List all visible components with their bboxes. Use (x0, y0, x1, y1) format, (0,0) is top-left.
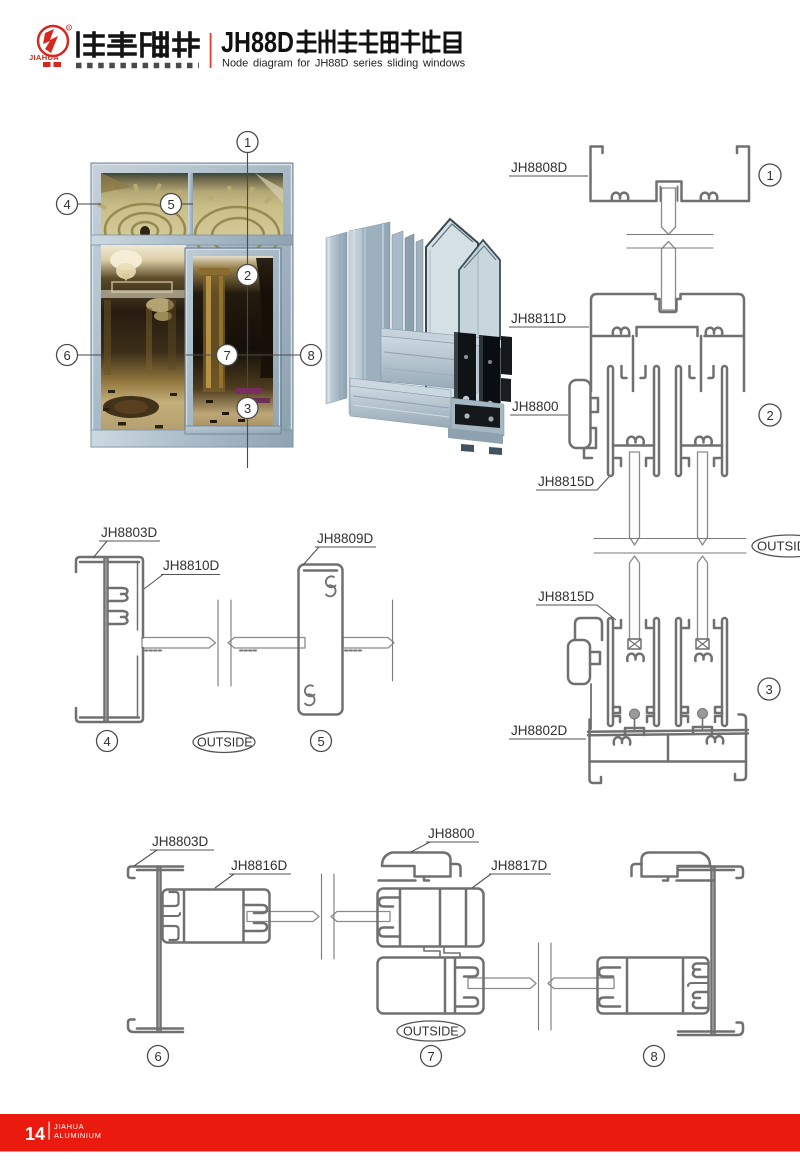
svg-text:OUTSIDE: OUTSIDE (403, 1025, 459, 1039)
svg-text:JH88D: JH88D (221, 27, 294, 59)
svg-text:JH8817D: JH8817D (491, 858, 548, 873)
svg-text:5: 5 (168, 197, 175, 212)
svg-text:2: 2 (244, 268, 251, 283)
svg-text:2: 2 (767, 408, 774, 423)
svg-text:JH8803D: JH8803D (101, 525, 158, 540)
svg-text:8: 8 (651, 1049, 658, 1064)
svg-text:JH8800: JH8800 (512, 399, 559, 414)
svg-text:7: 7 (224, 348, 231, 363)
svg-text:OUTSIDE: OUTSIDE (757, 539, 800, 554)
svg-text:JH8810D: JH8810D (163, 558, 220, 573)
svg-text:R: R (67, 26, 70, 31)
svg-text:JH8808D: JH8808D (511, 160, 568, 175)
svg-text:JH8809D: JH8809D (317, 531, 374, 546)
svg-text:3: 3 (766, 682, 773, 697)
svg-text:JIAHUA: JIAHUA (54, 1122, 84, 1131)
svg-text:JH8815D: JH8815D (538, 474, 595, 489)
svg-text:Node diagram for JH88D series: Node diagram for JH88D series sliding wi… (222, 58, 466, 70)
svg-text:14: 14 (25, 1124, 45, 1144)
svg-text:JIAHUA: JIAHUA (29, 53, 59, 62)
svg-text:JH8815D: JH8815D (538, 589, 595, 604)
svg-text:JH8802D: JH8802D (511, 723, 568, 738)
svg-text:JH8800: JH8800 (428, 826, 475, 841)
svg-text:JH8811D: JH8811D (511, 311, 567, 326)
svg-text:7: 7 (428, 1049, 435, 1064)
svg-text:ALUMINIUM: ALUMINIUM (54, 1131, 102, 1140)
svg-text:5: 5 (318, 734, 325, 749)
svg-text:1: 1 (767, 168, 774, 183)
svg-text:8: 8 (308, 348, 315, 363)
svg-text:4: 4 (64, 197, 71, 212)
svg-text:6: 6 (155, 1049, 162, 1064)
svg-text:JH8816D: JH8816D (231, 858, 288, 873)
svg-text:6: 6 (64, 348, 71, 363)
svg-text:JH8803D: JH8803D (152, 834, 209, 849)
svg-text:OUTSIDE: OUTSIDE (197, 736, 253, 750)
svg-text:4: 4 (104, 734, 111, 749)
svg-text:1: 1 (244, 135, 251, 150)
svg-text:3: 3 (244, 401, 251, 416)
